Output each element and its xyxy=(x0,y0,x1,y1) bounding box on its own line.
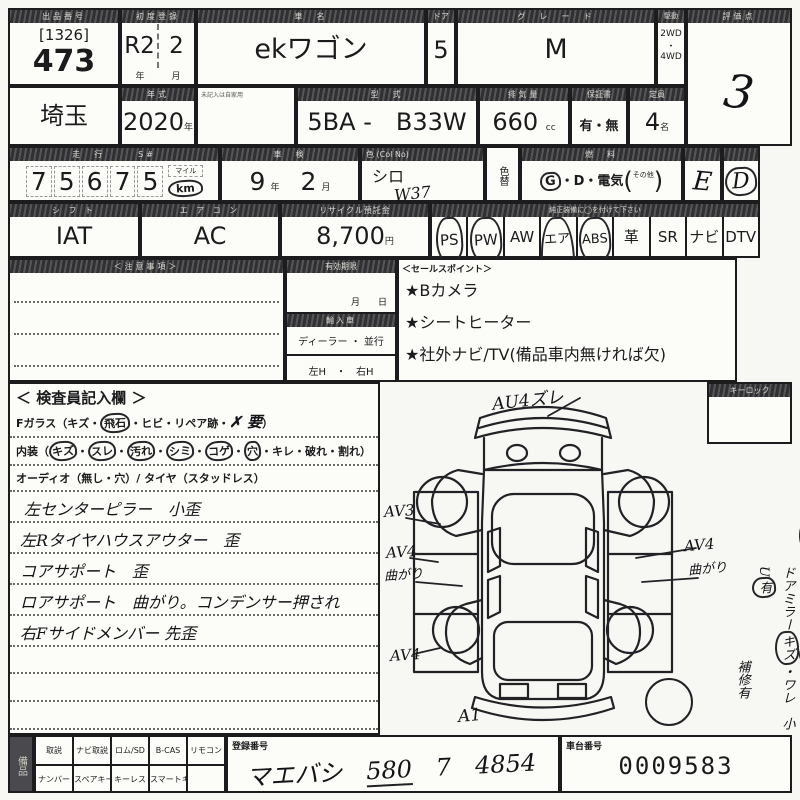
damage-label-left-front: AV3 xyxy=(383,501,415,521)
accessory-remote: リモコン xyxy=(186,737,224,764)
sales-points-label: ＜セールスポイント＞ xyxy=(399,260,735,275)
warranty-cell: 保証書 有・無 xyxy=(570,86,628,146)
inspection-year: 9 xyxy=(249,167,265,196)
model-year-value: 2020年 xyxy=(122,109,194,135)
drive-dot: ・ xyxy=(658,39,684,52)
model-code-label: 型 式 xyxy=(298,88,476,101)
equipment-label: 純正装備に◯を付けて下さい xyxy=(432,204,758,217)
accessory-rom-sd: ロム/SD xyxy=(110,737,148,764)
recycle-fee-label: リサイクル預託金 xyxy=(282,204,428,217)
model-code-value: 5BA - B33W xyxy=(298,109,476,135)
unit-year: 年 xyxy=(135,69,144,82)
capacity-cell: 定員 4名 xyxy=(628,86,686,146)
exterior-grade-cell: E xyxy=(683,146,722,202)
color-cell: 色 (Col No) シロ W37 xyxy=(360,146,485,202)
accessory-empty xyxy=(186,766,224,793)
fuel-label: 燃 料 xyxy=(522,148,681,161)
equipment-abs: ABS xyxy=(576,217,612,258)
ac-label: エ ア コ ン xyxy=(142,204,278,217)
fglass-line: Fガラス（キズ・飛石・ヒビ・リペア跡・✗ 要） xyxy=(10,410,378,438)
model-code-cell: 型 式 5BA - B33W xyxy=(296,86,478,146)
chassis-number-cell: 車台番号 0009583 xyxy=(560,735,792,793)
equipment-navi: ナビ xyxy=(685,217,721,258)
first-registration-year: R2 xyxy=(122,33,157,59)
mileage-cell: 走 行 S# 7 5 6 7 5 マイル km xyxy=(8,146,220,202)
displacement-label: 排気量 xyxy=(480,88,568,101)
validity-date: 月 日 xyxy=(287,273,395,314)
door-count: 5 xyxy=(428,37,454,63)
equipment-aw: AW xyxy=(503,217,539,258)
recycle-fee-cell: リサイクル預託金 8,700円 xyxy=(280,202,430,258)
equipment-leather: 革 xyxy=(612,217,648,258)
inspection-stamp-circle xyxy=(645,678,693,726)
validity-label: 有効期限 xyxy=(287,260,395,273)
score-value: 3 xyxy=(685,58,794,126)
accessory-spare-key: スペアキー xyxy=(72,766,110,793)
damage-label-left-door-bend: 曲がり xyxy=(383,563,423,585)
chassis-number-value: 0009583 xyxy=(562,752,790,780)
grade-cell: グ レ ー ド M xyxy=(456,8,656,86)
damage-label-right-door: AV4 xyxy=(683,535,715,556)
car-name-cell: 車 名 ekワゴン xyxy=(196,8,426,86)
keylock-label: キーロック xyxy=(709,384,790,397)
mileage-digit: 7 xyxy=(26,166,52,197)
inspection-label: 車 検 xyxy=(222,148,358,161)
sales-point: ★シートヒーター xyxy=(399,301,735,333)
score-label: 評価点 xyxy=(688,10,790,23)
caution-cell: ＜注意事項＞ xyxy=(8,258,285,382)
unit-month: 月 xyxy=(171,69,180,82)
private-use-cell: 未記入は自家用 xyxy=(196,86,296,146)
recycle-fee-value: 8,700円 xyxy=(282,223,428,249)
fuel-cell: 燃 料 G・D・電気(その他) xyxy=(520,146,683,202)
mileage-digit: 6 xyxy=(82,166,108,197)
exterior-grade: E xyxy=(684,166,721,199)
inspector-note: 左センターピラー 小歪 xyxy=(10,492,378,523)
sales-points-cell: ＜セールスポイント＞ ★Bカメラ ★シートヒーター ★社外ナビ/TV(備品車内無… xyxy=(397,258,737,382)
first-registration-cell: 初度登録 R2 2 年 月 xyxy=(120,8,196,86)
unit-cc: cc xyxy=(546,123,556,133)
equipment-pw: PW xyxy=(466,217,502,258)
door-label: ドア xyxy=(428,10,454,23)
inspection-cell: 車 検 9 年 2 月 xyxy=(220,146,360,202)
ac-value: AC xyxy=(142,223,278,249)
fuel-rest: ・D・電気 xyxy=(561,174,624,189)
audio-tire-line: オーディオ（無し・穴）/ タイヤ（スタッドレス） xyxy=(10,466,378,492)
displacement-value: 660 cc xyxy=(480,109,568,135)
shift-cell: シ フ ト IAT xyxy=(8,202,140,258)
inspector-note: ロアサポート 曲がり。コンデンサー押され xyxy=(10,585,378,616)
mileage-unit-mile: マイル xyxy=(168,165,203,177)
chassis-number-label: 車台番号 xyxy=(562,737,790,752)
damage-label-right-door-bend: 曲がり xyxy=(687,556,728,578)
drive-4wd: 4WD xyxy=(658,52,684,62)
lot-cell: 出品番号 [1326] 473 xyxy=(8,8,120,86)
accessory-grid: 取説 ナビ取説 ロム/SD B-CAS リモコン ナンバー スペアキー キーレス… xyxy=(34,735,226,793)
validity-cell: 有効期限 月 日 輸入車 ディーラー ・ 並行 左H ・ 右H xyxy=(285,258,397,382)
fuel-gasoline: G xyxy=(539,171,561,191)
inspector-title: ＜ 検査員記入欄 ＞ xyxy=(10,384,378,410)
drive-2wd: 2WD xyxy=(658,29,684,39)
import-dealer: ディーラー ・ 並行 xyxy=(287,327,395,356)
accessory-manual: 取説 xyxy=(36,737,72,764)
damage-label-left-rear: AV4 xyxy=(389,645,421,665)
equipment-ps: PS xyxy=(432,217,466,258)
grade-label: グ レ ー ド xyxy=(458,10,654,23)
accessory-navi-manual: ナビ取説 xyxy=(72,737,110,764)
accessory-number: ナンバー xyxy=(36,766,72,793)
registration-number-cell: 登録番号 マエバシ 580 7 4854 xyxy=(226,735,560,793)
color-label: 色 (Col No) xyxy=(362,148,483,161)
mileage-digit: 7 xyxy=(110,166,136,197)
drive-label: 駆動 xyxy=(658,10,684,23)
accessory-stamp-label: 備品 xyxy=(14,741,29,791)
car-name-label: 車 名 xyxy=(198,10,424,23)
first-registration-label: 初度登録 xyxy=(122,10,194,23)
capacity-value: 4名 xyxy=(630,109,684,135)
damage-label-left-door: AV4 xyxy=(385,542,417,562)
keylock-cell: キーロック xyxy=(707,382,792,444)
private-use-label: 未記入は自家用 xyxy=(198,88,294,99)
grade-value: M xyxy=(458,35,654,65)
caution-label: ＜注意事項＞ xyxy=(10,260,283,273)
car-name: ekワゴン xyxy=(198,35,424,65)
right-margin-notes: ホイル・CPキズ・ワレ 小キズ有 ドアミラーキズ・ワレ 小U有 補修有 xyxy=(732,448,800,736)
unit-month: 月 xyxy=(322,183,331,193)
region-value: 埼玉 xyxy=(10,103,118,129)
inspector-note: コアサポート 歪 xyxy=(10,554,378,585)
damage-label-rear: A1 xyxy=(457,705,482,727)
mileage-digit: 5 xyxy=(54,166,80,197)
mileage-unit-km: km xyxy=(168,179,204,198)
accessory-stamp-cell: 備品 xyxy=(8,735,34,793)
auction-sheet: 出品番号 [1326] 473 初度登録 R2 2 年 月 車 名 ekワゴン … xyxy=(0,0,800,800)
inspection-month: 2 xyxy=(301,167,317,196)
interior-grade-cell: D xyxy=(722,146,760,202)
equipment-airbag: エアB xyxy=(539,217,575,258)
warranty-label: 保証書 xyxy=(572,88,626,101)
repair-note: 補修有 xyxy=(732,448,752,736)
displacement-cell: 排気量 660 cc xyxy=(478,86,570,146)
equipment-sr: SR xyxy=(649,217,685,258)
color-change-cell: 色替 xyxy=(485,146,520,202)
unit-year: 年 xyxy=(184,123,193,133)
accessory-keyless: キーレス xyxy=(110,766,148,793)
drive-cell: 駆動 2WD ・ 4WD xyxy=(656,8,686,86)
car-top-view-diagram xyxy=(380,382,740,735)
interior-line: 内装（キズ・スレ・汚れ・シミ・コゲ・穴・キレ・破れ・割れ） xyxy=(10,438,378,466)
door-cell: ドア 5 xyxy=(426,8,456,86)
fuel-other: その他 xyxy=(633,171,654,179)
capacity-label: 定員 xyxy=(630,88,684,101)
ac-cell: エ ア コ ン AC xyxy=(140,202,280,258)
score-cell: 評価点 3 xyxy=(686,8,792,146)
import-handle: 左H ・ 右H xyxy=(287,356,395,385)
lot-label: 出品番号 xyxy=(10,10,118,23)
color-change-label: 色替 xyxy=(495,156,510,196)
interior-grade: D xyxy=(724,166,757,197)
equipment-cell: 純正装備に◯を付けて下さい PS PW AW エアB ABS 革 SR ナビ D… xyxy=(430,202,760,258)
inspector-cell: ＜ 検査員記入欄 ＞ Fガラス（キズ・飛石・ヒビ・リペア跡・✗ 要） 内装（キズ… xyxy=(8,382,380,735)
unit-yen: 円 xyxy=(385,237,394,247)
inspector-note: 左Rタイヤハウスアウター 歪 xyxy=(10,523,378,554)
inspector-note: 右Fサイドメンバー 先歪 xyxy=(10,616,378,647)
lot-code: [1326] xyxy=(10,26,118,44)
sales-point: ★Bカメラ xyxy=(399,275,735,301)
sales-point: ★社外ナビ/TV(備品車内無ければ欠) xyxy=(399,333,735,365)
unit-persons: 名 xyxy=(660,123,669,133)
equipment-dtv: DTV xyxy=(722,217,758,258)
door-mirror-note: ドアミラーキズ・ワレ 小U有 xyxy=(752,448,799,736)
import-label: 輸入車 xyxy=(287,314,395,327)
unit-year: 年 xyxy=(270,183,279,193)
mileage-label: 走 行 S# xyxy=(10,148,218,161)
first-registration-month: 2 xyxy=(159,33,194,59)
shift-value: IAT xyxy=(10,223,138,249)
model-year-cell: 年式 2020年 xyxy=(120,86,196,146)
lot-number: 473 xyxy=(10,44,118,79)
accessory-smart-key: スマートキー xyxy=(148,766,186,793)
region-cell: 埼玉 xyxy=(8,86,120,146)
accessory-bcas: B-CAS xyxy=(148,737,186,764)
warranty-value: 有・無 xyxy=(572,115,626,134)
model-year-label: 年式 xyxy=(122,88,194,101)
mileage-digit: 5 xyxy=(137,166,163,197)
shift-label: シ フ ト xyxy=(10,204,138,217)
